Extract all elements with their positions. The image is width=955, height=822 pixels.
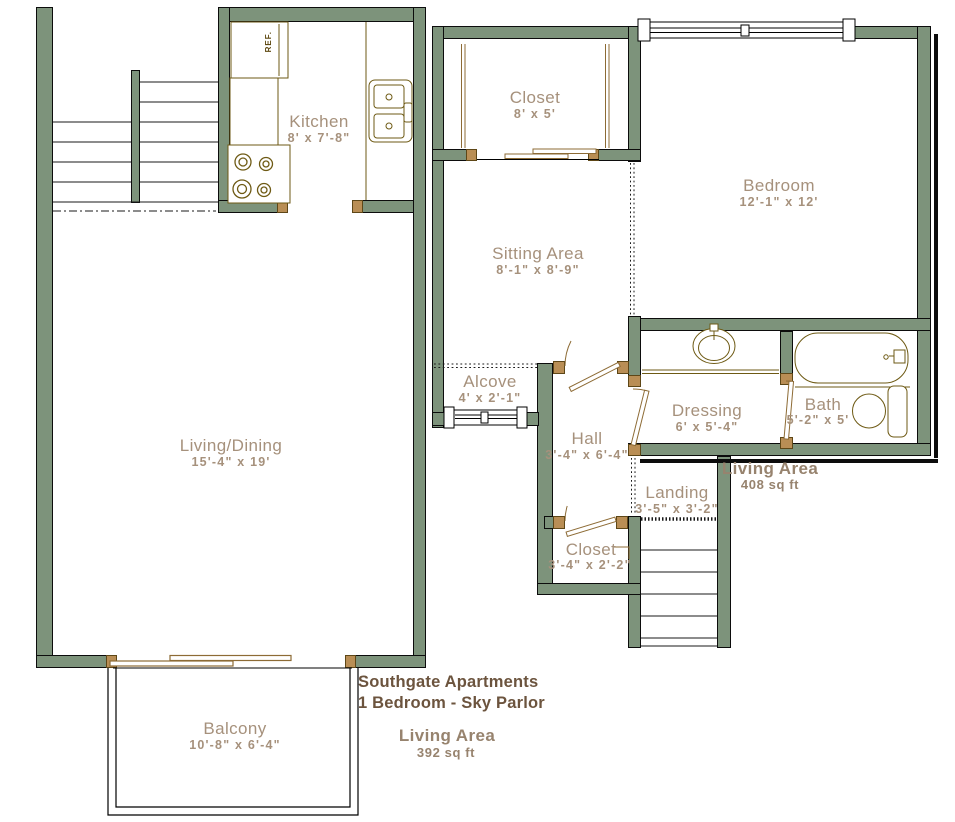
room-label-closet-hall: Closet	[566, 541, 617, 559]
room-dims-bedroom: 12'-1" x 12'	[739, 196, 818, 209]
room-dims-living-dining: 15'-4" x 19'	[191, 456, 270, 469]
room-dims-balcony: 10'-8" x 6'-4"	[189, 739, 281, 752]
room-dims-dressing: 6' x 5'-4"	[676, 421, 739, 434]
plan-title-line2: 1 Bedroom - Sky Parlor	[358, 694, 545, 713]
room-dims-sitting-area: 8'-1" x 8'-9"	[496, 264, 579, 277]
room-label-balcony: Balcony	[203, 720, 266, 738]
room-label-bath: Bath	[805, 396, 842, 414]
door-sitting-hall	[565, 341, 620, 391]
room-label-landing: Landing	[645, 484, 708, 502]
living-area-upper-value: 408 sq ft	[741, 478, 799, 492]
room-label-bedroom: Bedroom	[743, 177, 815, 195]
room-dims-landing: 3'-5" x 3'-2"	[635, 503, 718, 516]
room-dims-kitchen: 8' x 7'-8"	[288, 132, 351, 145]
refrigerator	[231, 22, 288, 78]
room-dims-bath: 5'-2" x 5'	[787, 414, 850, 427]
room-dims-closet-top: 8' x 5'	[514, 108, 556, 121]
room-label-kitchen: Kitchen	[289, 113, 349, 131]
room-dims-hall: 3'-4" x 6'-4"	[545, 449, 628, 462]
kitchen-sink	[369, 80, 412, 142]
alcove-window	[444, 407, 527, 428]
bathtub	[795, 333, 910, 387]
living-area-lower-value: 392 sq ft	[417, 746, 475, 760]
room-label-hall: Hall	[572, 430, 603, 448]
closet-sliding-door	[477, 149, 599, 160]
room-label-alcove: Alcove	[463, 373, 516, 391]
door-hall-dressing	[631, 389, 649, 446]
plan-title-line1: Southgate Apartments	[358, 673, 538, 692]
room-dims-closet-hall: 3'-4" x 2'-2"	[548, 559, 631, 572]
stove	[228, 145, 290, 203]
room-label-closet-top: Closet	[510, 89, 561, 107]
door-bath	[784, 381, 794, 439]
floor-plan: Kitchen 8' x 7'-8" Closet 8' x 5' Bedroo…	[0, 0, 955, 822]
living-area-upper-label: Living Area	[722, 460, 818, 478]
toilet	[853, 386, 908, 437]
upper-stairs	[53, 82, 218, 211]
lower-stairs	[641, 519, 717, 646]
room-label-living-dining: Living/Dining	[180, 437, 283, 455]
room-label-dressing: Dressing	[672, 402, 742, 420]
door-hall-closet	[565, 506, 616, 536]
room-label-sitting-area: Sitting Area	[492, 245, 584, 263]
room-dims-alcove: 4' x 2'-1"	[459, 392, 522, 405]
living-area-lower-label: Living Area	[399, 727, 495, 745]
vanity-sink	[642, 324, 779, 374]
bedroom-window	[638, 19, 855, 41]
refrigerator-label: REF.	[264, 31, 273, 52]
